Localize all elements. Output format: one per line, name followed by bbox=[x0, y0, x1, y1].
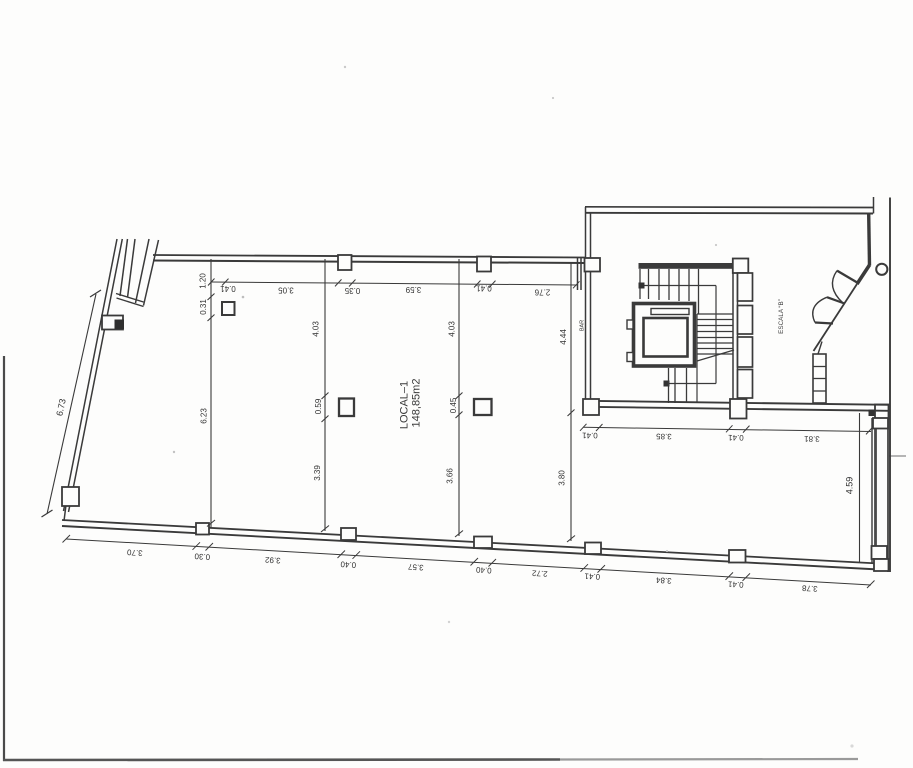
svg-text:6.73: 6.73 bbox=[54, 398, 68, 417]
svg-text:3.85: 3.85 bbox=[656, 432, 672, 441]
svg-text:3.84: 3.84 bbox=[655, 575, 672, 585]
svg-text:3.39: 3.39 bbox=[313, 465, 322, 481]
svg-text:4.59: 4.59 bbox=[845, 477, 855, 495]
svg-text:0.41: 0.41 bbox=[582, 431, 598, 440]
svg-text:3.81: 3.81 bbox=[804, 434, 820, 443]
svg-text:3.05: 3.05 bbox=[278, 286, 294, 295]
svg-text:3.59: 3.59 bbox=[405, 285, 421, 294]
svg-text:3.92: 3.92 bbox=[264, 555, 281, 565]
svg-text:4.44: 4.44 bbox=[559, 329, 568, 345]
svg-text:3.57: 3.57 bbox=[407, 562, 424, 572]
svg-text:0.41: 0.41 bbox=[476, 284, 492, 293]
svg-text:0.41: 0.41 bbox=[728, 433, 744, 442]
svg-text:ESCALA “B”: ESCALA “B” bbox=[778, 299, 785, 334]
svg-text:0.31: 0.31 bbox=[199, 299, 208, 315]
svg-text:0.41: 0.41 bbox=[584, 571, 601, 581]
svg-text:2.76: 2.76 bbox=[534, 287, 550, 296]
svg-text:3.78: 3.78 bbox=[801, 583, 818, 593]
svg-text:2.72: 2.72 bbox=[531, 568, 548, 578]
svg-text:0.40: 0.40 bbox=[475, 565, 492, 575]
svg-text:0.45: 0.45 bbox=[449, 397, 458, 413]
svg-text:0.35: 0.35 bbox=[344, 286, 360, 295]
svg-text:0.40: 0.40 bbox=[340, 560, 357, 570]
svg-text:0.41: 0.41 bbox=[727, 579, 744, 589]
svg-text:3.80: 3.80 bbox=[558, 470, 567, 486]
svg-text:4.03: 4.03 bbox=[312, 321, 321, 337]
svg-text:6.23: 6.23 bbox=[200, 408, 209, 424]
svg-text:4.03: 4.03 bbox=[448, 321, 457, 337]
svg-text:148,85m2: 148,85m2 bbox=[411, 379, 423, 428]
svg-text:0.59: 0.59 bbox=[314, 398, 323, 414]
svg-text:0.41: 0.41 bbox=[220, 284, 236, 293]
svg-text:3.66: 3.66 bbox=[446, 468, 455, 484]
svg-text:BAR: BAR bbox=[580, 320, 586, 331]
svg-text:3.70: 3.70 bbox=[126, 548, 143, 558]
svg-text:1.20: 1.20 bbox=[199, 273, 208, 289]
svg-text:LOCAL–1: LOCAL–1 bbox=[399, 381, 411, 429]
svg-text:0.30: 0.30 bbox=[194, 552, 211, 562]
